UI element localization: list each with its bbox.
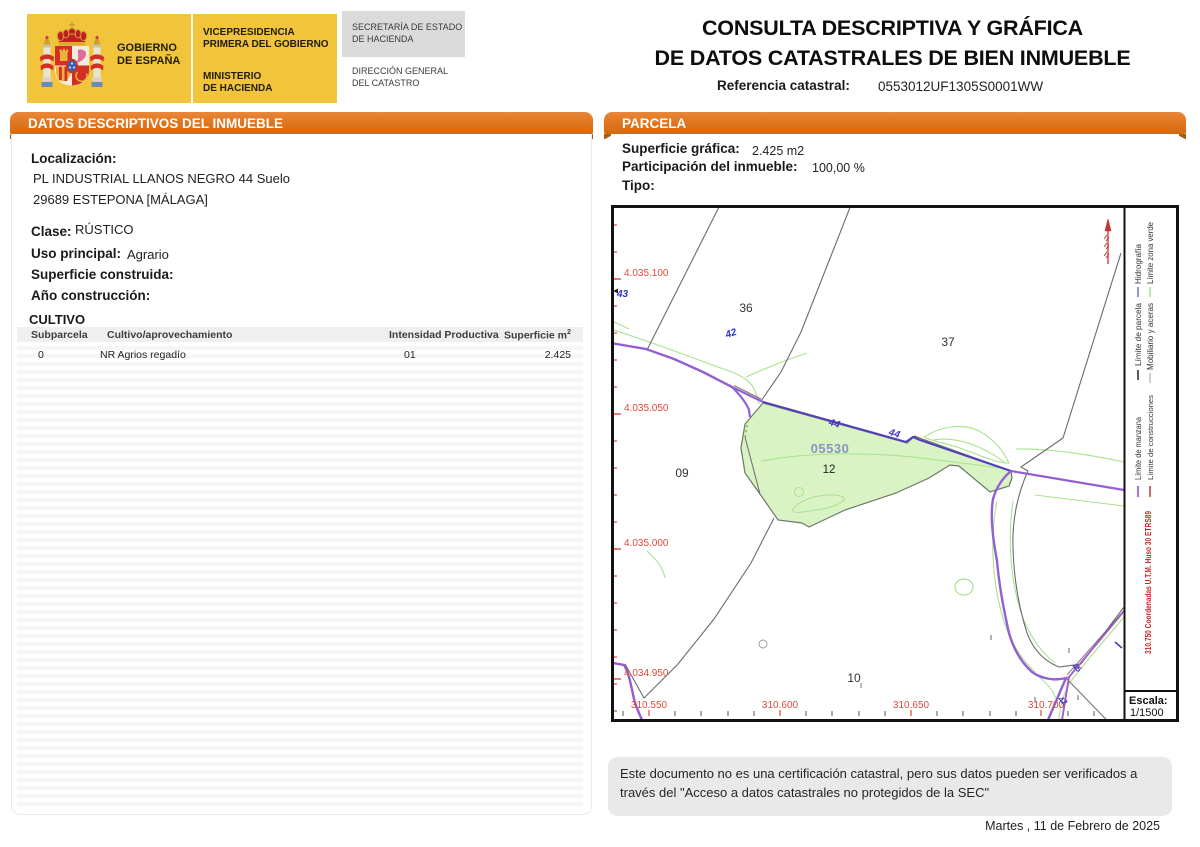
svg-text:09: 09 — [675, 466, 689, 480]
svg-text:10: 10 — [847, 671, 861, 685]
svg-text:310.650: 310.650 — [893, 700, 930, 711]
svg-text:Límite de construcciones: Límite de construcciones — [1146, 395, 1155, 480]
svg-text:310.600: 310.600 — [762, 700, 799, 711]
svg-text:310.550: 310.550 — [631, 700, 668, 711]
svg-text:4.034.950: 4.034.950 — [624, 668, 669, 679]
svg-text:36: 36 — [739, 301, 753, 315]
svg-text:12: 12 — [823, 464, 836, 476]
svg-text:4.035.050: 4.035.050 — [624, 403, 669, 414]
svg-text:4.035.000: 4.035.000 — [624, 538, 669, 549]
svg-text:37: 37 — [941, 335, 955, 349]
svg-text:Escala:: Escala: — [1129, 695, 1168, 707]
svg-text:Mobiliario y aceras: Mobiliario y aceras — [1146, 303, 1155, 370]
svg-text:Límite de parcela: Límite de parcela — [1134, 303, 1143, 366]
svg-text:1/1500: 1/1500 — [1130, 707, 1164, 719]
svg-text:Límite zona verde: Límite zona verde — [1146, 222, 1155, 284]
svg-text:05530: 05530 — [811, 441, 850, 456]
svg-text:Hidrografía: Hidrografía — [1134, 244, 1143, 284]
svg-text:310.750 Coordenadas U.T.M. Hus: 310.750 Coordenadas U.T.M. Huso 30 ETRS8… — [1144, 510, 1153, 654]
svg-text:4.035.100: 4.035.100 — [624, 268, 669, 279]
svg-text:Límite de manzana: Límite de manzana — [1134, 417, 1143, 480]
